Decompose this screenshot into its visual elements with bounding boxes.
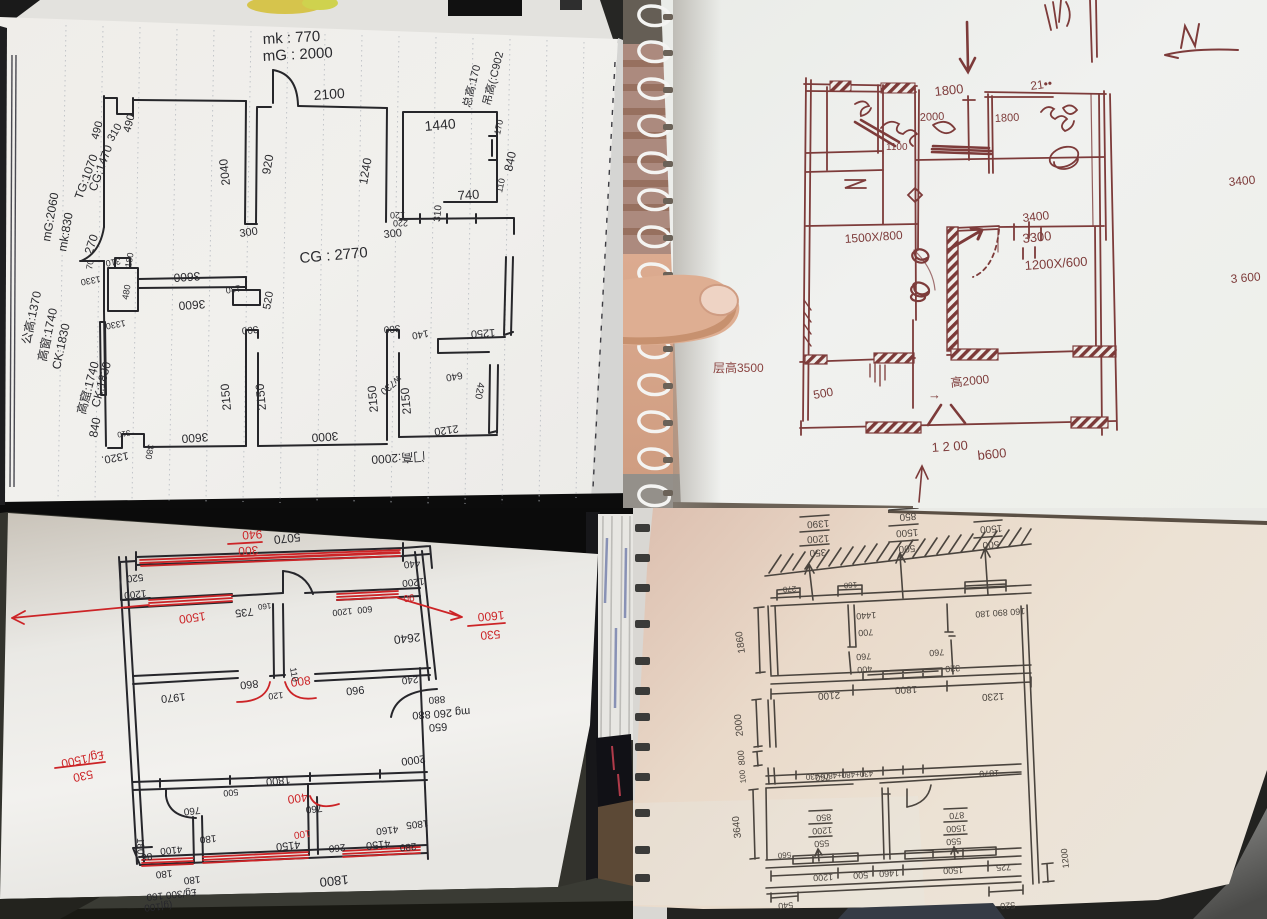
svg-text:70: 70 <box>84 259 96 271</box>
svg-text:b600: b600 <box>977 445 1007 463</box>
svg-text:1440: 1440 <box>424 115 457 134</box>
svg-text:850: 850 <box>816 812 832 823</box>
svg-text:2100: 2100 <box>313 85 345 103</box>
svg-text:1230: 1230 <box>981 690 1004 702</box>
svg-text:3 600: 3 600 <box>1230 269 1261 286</box>
svg-text:3000: 3000 <box>311 429 339 445</box>
svg-text:940: 940 <box>241 527 262 542</box>
svg-text:650: 650 <box>428 720 447 733</box>
svg-text:1200: 1200 <box>806 532 829 545</box>
svg-text:440: 440 <box>403 557 421 570</box>
svg-text:3400: 3400 <box>1022 208 1050 225</box>
svg-text:300: 300 <box>237 543 258 558</box>
svg-text:260: 260 <box>328 841 346 854</box>
svg-text:600: 600 <box>357 604 373 616</box>
svg-text:1800: 1800 <box>894 683 917 695</box>
svg-text:500: 500 <box>853 870 869 881</box>
svg-text:100: 100 <box>738 769 748 784</box>
svg-text:735: 735 <box>234 605 254 619</box>
svg-text:1200: 1200 <box>813 872 834 883</box>
svg-text:740: 740 <box>457 187 480 203</box>
svg-text:280: 280 <box>399 840 417 853</box>
svg-text:4150: 4150 <box>275 838 301 852</box>
svg-text:3600: 3600 <box>181 430 209 446</box>
svg-text:700: 700 <box>858 627 874 638</box>
svg-text:1 2 00: 1 2 00 <box>931 438 968 455</box>
svg-text:1250: 1250 <box>470 326 495 340</box>
svg-text:→: → <box>928 387 941 402</box>
svg-text:880: 880 <box>428 693 446 705</box>
svg-text:800: 800 <box>735 750 747 766</box>
svg-text:530: 530 <box>479 627 500 643</box>
svg-text:500: 500 <box>223 787 239 799</box>
svg-text:1800: 1800 <box>995 112 1020 125</box>
svg-text:1390: 1390 <box>806 517 829 530</box>
svg-text:21••: 21•• <box>1029 76 1052 93</box>
svg-text:1800: 1800 <box>319 872 349 890</box>
svg-text:160: 160 <box>257 601 272 611</box>
svg-text:2000: 2000 <box>920 111 945 124</box>
svg-text:540: 540 <box>778 900 794 911</box>
svg-text:层高3500: 层高3500 <box>713 360 764 375</box>
svg-text:1800: 1800 <box>934 81 964 99</box>
svg-text:1500: 1500 <box>979 522 1002 535</box>
svg-text:310: 310 <box>432 204 444 222</box>
svg-text:850: 850 <box>899 510 917 522</box>
svg-text:500: 500 <box>982 538 1000 550</box>
svg-text:270: 270 <box>782 584 796 594</box>
svg-text:120: 120 <box>268 690 284 702</box>
svg-text:2150: 2150 <box>398 387 414 415</box>
svg-text:760: 760 <box>929 647 945 658</box>
svg-text:520: 520 <box>126 571 144 584</box>
svg-text:180: 180 <box>155 867 173 880</box>
svg-text:4150: 4150 <box>365 837 391 851</box>
svg-text:760: 760 <box>856 651 872 662</box>
svg-text:550: 550 <box>814 838 830 849</box>
svg-text:1460: 1460 <box>879 868 900 879</box>
svg-text:1970: 1970 <box>160 690 186 704</box>
svg-text:400: 400 <box>857 664 873 675</box>
svg-text:760: 760 <box>183 804 201 817</box>
svg-text:960: 960 <box>345 683 365 697</box>
svg-text:300: 300 <box>239 226 259 240</box>
svg-text:2150: 2150 <box>253 383 269 411</box>
svg-text:1800: 1800 <box>265 773 291 787</box>
svg-text:3600: 3600 <box>173 269 201 285</box>
svg-text:1500: 1500 <box>895 526 918 539</box>
svg-text:1200: 1200 <box>812 825 833 836</box>
svg-text:1200: 1200 <box>1059 848 1071 869</box>
svg-text:2100: 2100 <box>817 689 840 701</box>
svg-text:500: 500 <box>898 542 916 554</box>
svg-text:725: 725 <box>996 862 1012 873</box>
svg-text:320: 320 <box>945 663 961 674</box>
svg-text:180: 180 <box>134 838 146 855</box>
svg-text:860: 860 <box>239 677 259 691</box>
svg-text:3400: 3400 <box>1228 173 1256 189</box>
svg-text:760: 760 <box>305 802 323 815</box>
svg-text:870: 870 <box>949 810 965 821</box>
svg-text:180: 180 <box>199 832 217 845</box>
svg-text:520: 520 <box>1000 900 1016 911</box>
svg-text:240: 240 <box>401 673 419 686</box>
svg-text:2040: 2040 <box>216 158 233 186</box>
svg-text:2640: 2640 <box>393 630 421 647</box>
svg-text:1100: 1100 <box>886 142 908 153</box>
svg-text:3600: 3600 <box>178 297 206 313</box>
svg-text:300: 300 <box>383 227 403 241</box>
svg-text:1500: 1500 <box>946 823 967 834</box>
svg-text:1200: 1200 <box>332 606 353 618</box>
svg-text:350: 350 <box>809 546 827 558</box>
svg-text:1440: 1440 <box>856 610 877 621</box>
svg-text:2150: 2150 <box>218 383 234 411</box>
svg-text:560: 560 <box>777 850 791 860</box>
svg-text:5070: 5070 <box>273 530 301 547</box>
svg-text:300: 300 <box>241 323 259 336</box>
svg-text:180: 180 <box>183 873 201 886</box>
svg-text:1600: 1600 <box>477 608 505 624</box>
svg-text:3300: 3300 <box>1022 228 1052 246</box>
svg-text:90: 90 <box>402 591 415 604</box>
svg-text:160: 160 <box>843 580 857 590</box>
svg-text:1500: 1500 <box>943 865 964 876</box>
svg-text:550: 550 <box>946 836 962 847</box>
svg-text:300: 300 <box>383 322 401 335</box>
svg-text:1870: 1870 <box>979 768 1000 779</box>
svg-text:2150: 2150 <box>365 385 381 413</box>
